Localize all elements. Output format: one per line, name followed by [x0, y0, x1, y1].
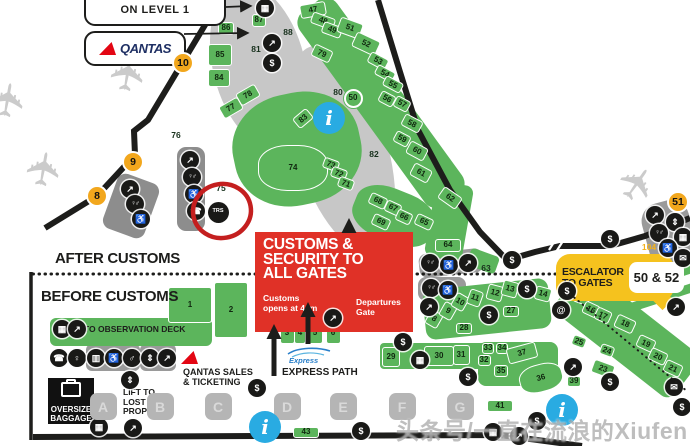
checkin-row-D: D — [274, 393, 301, 420]
gate-marker-9: 9 — [122, 151, 144, 173]
airport-terminal-map: ✈✈✈✈ 8786858 — [0, 0, 690, 446]
gate-marker-8: 8 — [86, 185, 108, 207]
information-icon: i — [249, 411, 281, 443]
checkin-row-E: E — [330, 393, 357, 420]
annotations-layer — [0, 0, 690, 446]
watermark: 头条号/一直在流浪的Xiufen — [396, 412, 690, 446]
checkin-row-C: C — [205, 393, 232, 420]
gate-marker-51: 51 — [667, 191, 689, 213]
checkin-row-A: A — [90, 393, 117, 420]
information-icon: i — [313, 102, 345, 134]
gate-marker-10: 10 — [172, 52, 194, 74]
checkin-row-B: B — [147, 393, 174, 420]
